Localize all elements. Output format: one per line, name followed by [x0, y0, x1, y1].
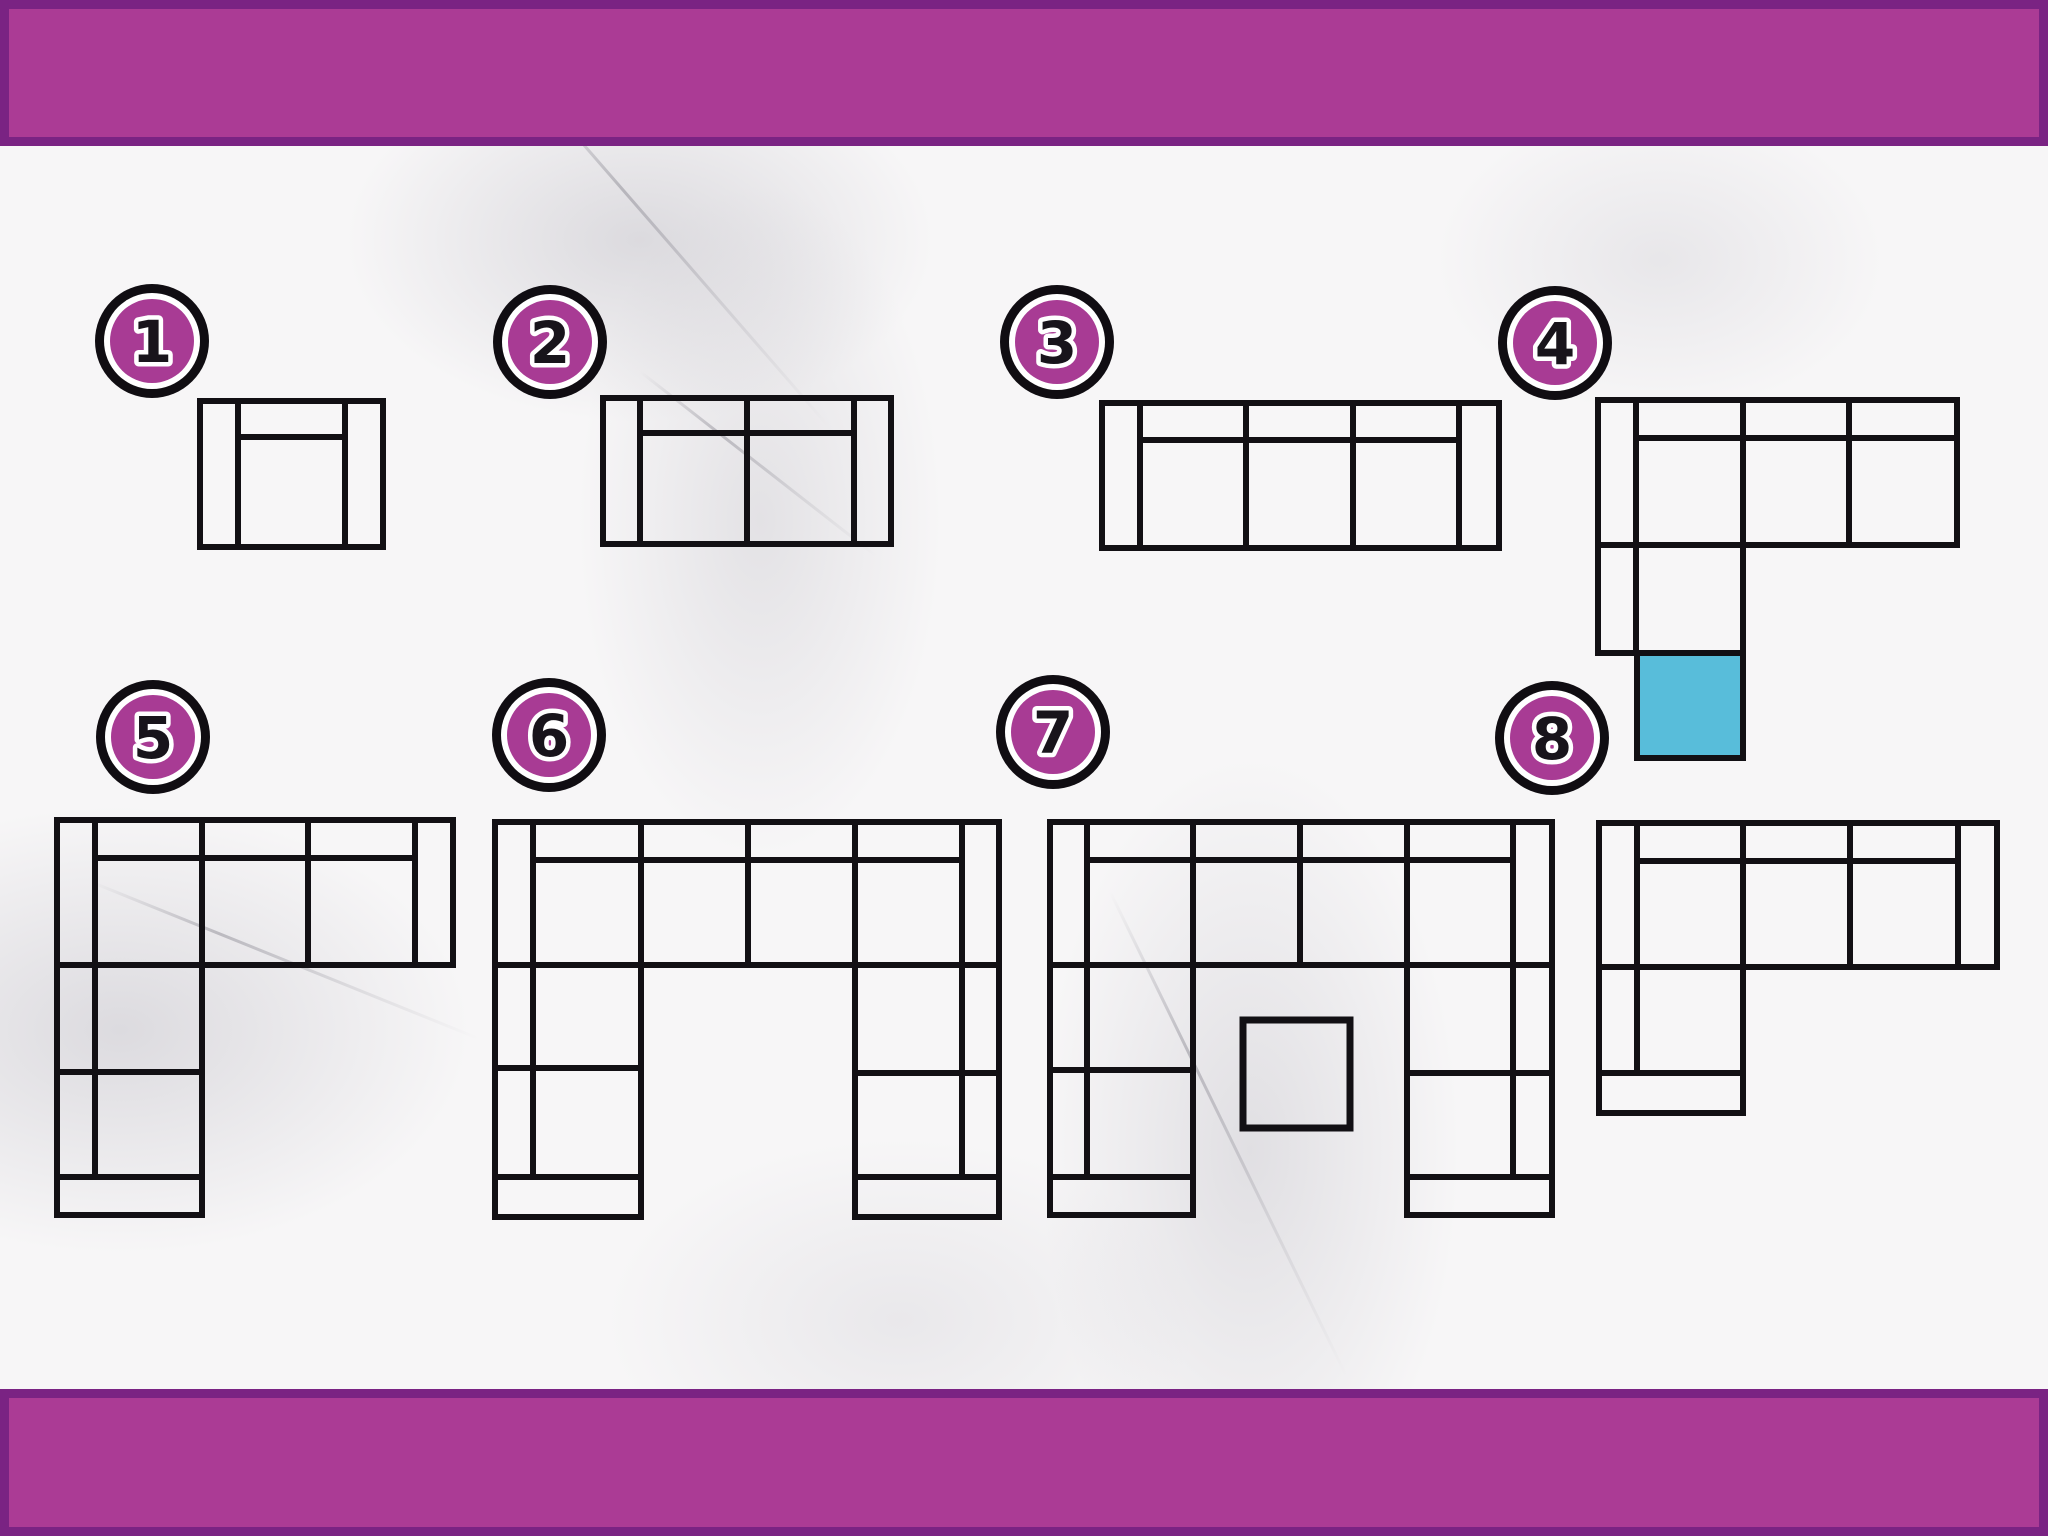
badge-number: 5 [133, 704, 173, 772]
badge-number: 3 [1037, 309, 1077, 377]
sofa-5 [57, 820, 453, 1215]
badge-number: 4 [1535, 310, 1575, 378]
sofa-4 [1598, 400, 1957, 653]
badge-4[interactable]: 4 [1498, 286, 1612, 400]
sofa-2 [603, 398, 891, 544]
badge-6[interactable]: 6 [492, 678, 606, 792]
slide: 12345678 [0, 0, 2048, 1536]
badge-3[interactable]: 3 [1000, 285, 1114, 399]
badge-8[interactable]: 8 [1495, 681, 1609, 795]
badge-number: 6 [529, 702, 569, 770]
badge-number: 1 [132, 308, 172, 376]
sofa-3 [1102, 403, 1499, 548]
sofa-6 [495, 822, 999, 1217]
highlight-square [1637, 653, 1743, 758]
badge-7[interactable]: 7 [996, 675, 1110, 789]
sofa-8 [1599, 823, 1997, 1113]
badge-number: 2 [530, 309, 570, 377]
sofa-1 [200, 401, 383, 547]
badge-number: 8 [1532, 705, 1572, 773]
badge-5[interactable]: 5 [96, 680, 210, 794]
badge-number: 7 [1033, 699, 1073, 767]
badge-1[interactable]: 1 [95, 284, 209, 398]
diagram-svg: 12345678 [0, 0, 2048, 1536]
badge-2[interactable]: 2 [493, 285, 607, 399]
ottoman [1243, 1020, 1350, 1128]
